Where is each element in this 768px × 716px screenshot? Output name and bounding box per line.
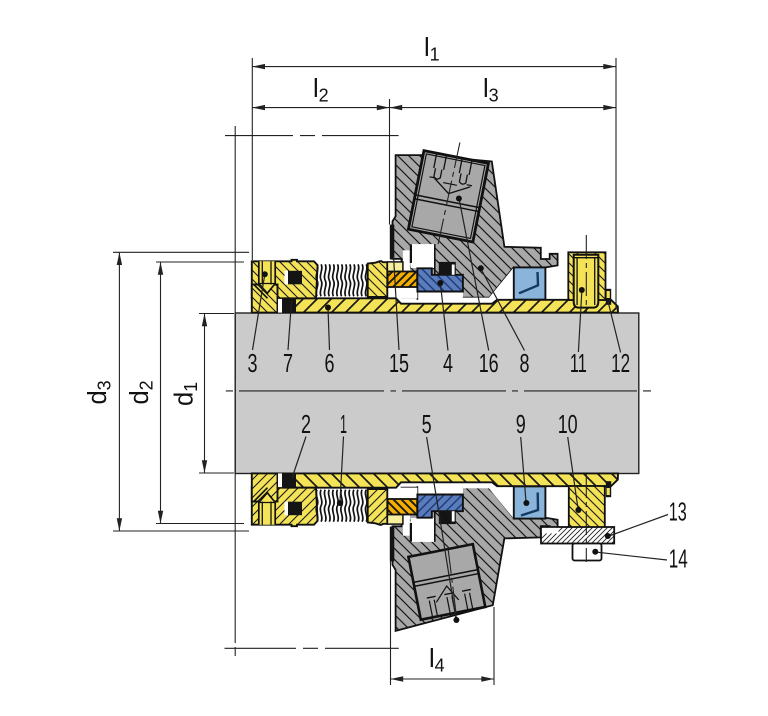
svg-text:8: 8	[520, 350, 530, 378]
svg-text:10: 10	[558, 411, 578, 439]
svg-text:16: 16	[479, 350, 499, 378]
svg-text:6: 6	[325, 350, 335, 378]
svg-text:2: 2	[301, 411, 311, 439]
svg-text:11: 11	[570, 350, 587, 378]
svg-text:4: 4	[443, 350, 453, 378]
svg-text:14: 14	[669, 545, 688, 573]
svg-text:1: 1	[340, 411, 347, 439]
svg-text:3: 3	[248, 350, 258, 378]
svg-text:5: 5	[422, 411, 432, 439]
svg-text:15: 15	[389, 350, 409, 378]
svg-text:7: 7	[283, 350, 293, 378]
svg-text:9: 9	[516, 411, 526, 439]
svg-text:12: 12	[611, 350, 630, 378]
svg-text:13: 13	[669, 499, 687, 527]
